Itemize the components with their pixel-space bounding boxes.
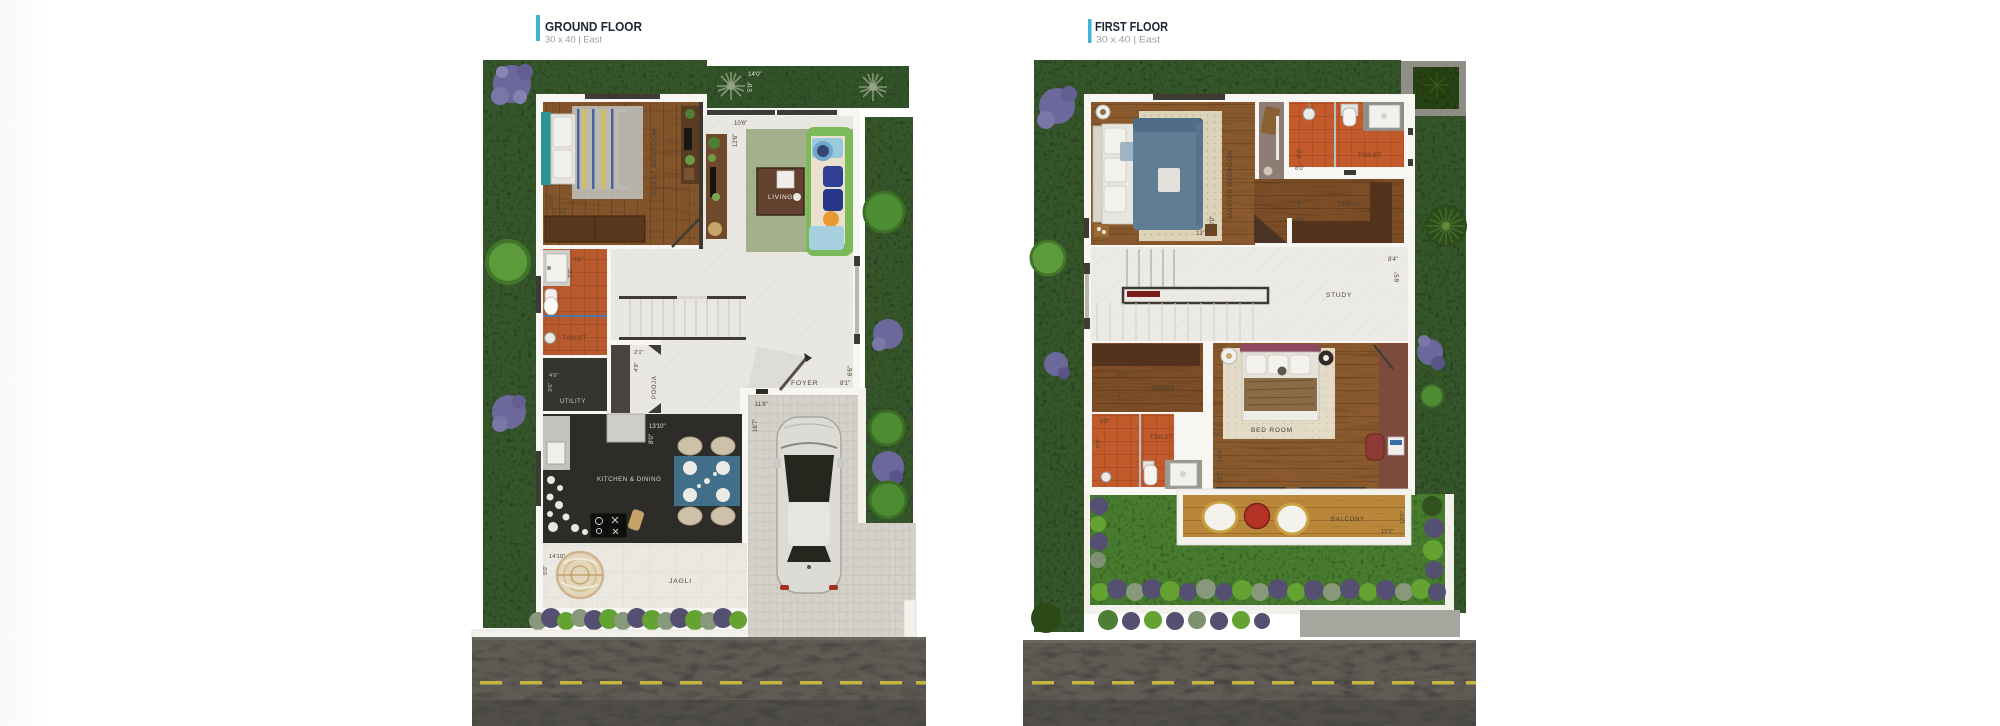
- svg-text:BED ROOM: BED ROOM: [1251, 427, 1293, 434]
- svg-text:UTILITY: UTILITY: [560, 399, 586, 405]
- svg-text:FIRST FLOOR: FIRST FLOOR: [1095, 19, 1168, 34]
- svg-text:8'0": 8'0": [1296, 217, 1306, 223]
- svg-text:13'7": 13'7": [1218, 471, 1224, 484]
- svg-text:MASTER BEDROOM: MASTER BEDROOM: [1227, 150, 1234, 218]
- svg-text:7'6": 7'6": [568, 268, 574, 278]
- svg-text:4'6": 4'6": [573, 257, 583, 263]
- svg-text:JAGLI: JAGLI: [669, 578, 692, 585]
- svg-text:DRESS: DRESS: [1152, 386, 1175, 392]
- svg-text:14'10": 14'10": [549, 554, 565, 560]
- svg-text:6'6": 6'6": [848, 366, 854, 376]
- svg-text:8'4": 8'4": [1388, 257, 1398, 263]
- svg-text:4'6": 4'6": [1117, 388, 1123, 398]
- svg-text:5'0": 5'0": [1096, 438, 1102, 448]
- svg-text:2'1": 2'1": [634, 350, 644, 356]
- svg-text:30 x 40 | East: 30 x 40 | East: [1096, 35, 1160, 46]
- svg-text:15'2": 15'2": [1381, 529, 1394, 535]
- svg-text:3'6": 3'6": [548, 382, 554, 392]
- svg-text:5'0": 5'0": [543, 565, 549, 575]
- svg-text:GROUND FLOOR: GROUND FLOOR: [545, 19, 642, 34]
- svg-text:11'10": 11'10": [551, 209, 567, 215]
- svg-text:6'5": 6'5": [1395, 272, 1401, 282]
- svg-text:STUDY: STUDY: [1326, 292, 1352, 299]
- svg-text:13'10": 13'10": [649, 424, 666, 430]
- svg-text:LIVING: LIVING: [768, 194, 793, 201]
- svg-text:TOILET: TOILET: [1150, 435, 1173, 441]
- svg-text:KITCHEN & DINING: KITCHEN & DINING: [597, 476, 661, 483]
- svg-text:10'0": 10'0": [1210, 216, 1216, 229]
- svg-text:FOYER: FOYER: [791, 380, 818, 387]
- svg-text:8'0": 8'0": [1100, 419, 1110, 425]
- svg-text:30 x 40 | East: 30 x 40 | East: [545, 35, 602, 46]
- svg-text:8'0": 8'0": [1295, 166, 1305, 172]
- svg-text:12'6": 12'6": [733, 134, 739, 147]
- svg-text:DRESS: DRESS: [1338, 202, 1361, 208]
- svg-text:8'0": 8'0": [649, 434, 655, 444]
- svg-text:TOILET: TOILET: [563, 336, 587, 342]
- svg-text:10'0": 10'0": [549, 194, 555, 207]
- svg-text:4'6": 4'6": [1297, 199, 1303, 209]
- svg-text:8'1": 8'1": [840, 381, 850, 387]
- svg-text:8'0": 8'0": [1118, 373, 1128, 379]
- svg-text:GUEST BEDROOM: GUEST BEDROOM: [651, 128, 658, 196]
- svg-text:10'6": 10'6": [734, 121, 747, 127]
- svg-text:5'0": 5'0": [747, 82, 754, 92]
- svg-text:13'7": 13'7": [1196, 231, 1209, 237]
- svg-text:POOJA: POOJA: [652, 376, 658, 399]
- svg-text:11'8": 11'8": [755, 402, 768, 408]
- svg-text:4'9": 4'9": [634, 362, 640, 372]
- svg-text:5'2": 5'2": [1297, 148, 1303, 158]
- svg-text:16'7": 16'7": [753, 419, 759, 432]
- svg-text:14'0": 14'0": [748, 71, 762, 78]
- svg-text:BALCONY: BALCONY: [1331, 516, 1365, 523]
- svg-text:4'6": 4'6": [549, 373, 559, 379]
- svg-text:10'0": 10'0": [1218, 449, 1224, 462]
- svg-text:TOILET: TOILET: [1358, 153, 1382, 159]
- svg-text:13'0": 13'0": [1400, 511, 1406, 524]
